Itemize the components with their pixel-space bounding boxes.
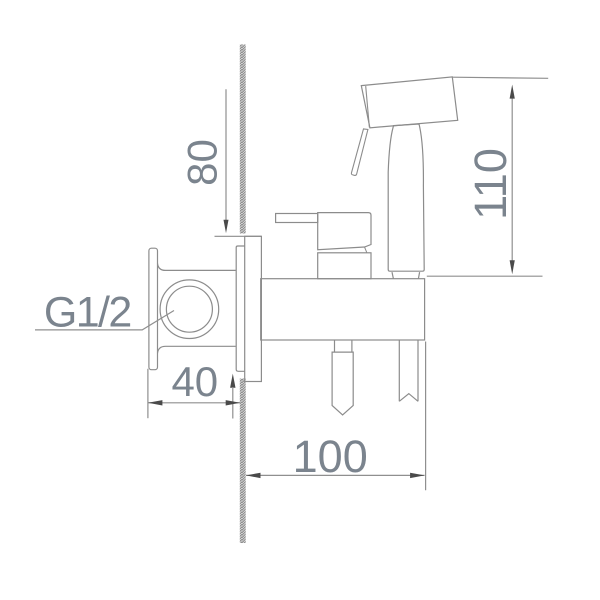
- svg-text:110: 110: [465, 148, 516, 220]
- svg-text:G1/2: G1/2: [44, 289, 131, 337]
- svg-text:80: 80: [178, 139, 225, 186]
- svg-text:100: 100: [293, 431, 368, 482]
- svg-text:40: 40: [171, 358, 218, 405]
